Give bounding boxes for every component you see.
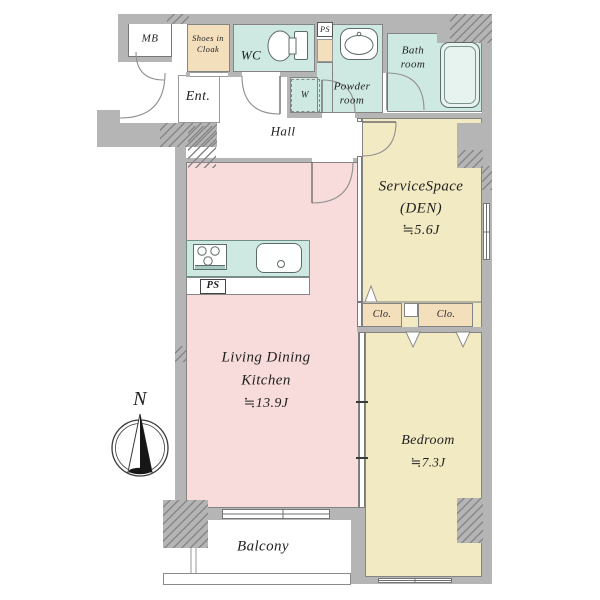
label-ldk-area: ≒13.9J <box>244 397 289 411</box>
door-gap-powder <box>322 113 355 118</box>
window-ldk-balcony <box>222 509 330 519</box>
hatch <box>188 126 216 168</box>
label-den-1: ServiceSpace <box>379 180 464 195</box>
wall-segment <box>118 14 128 62</box>
label-bedroom: Bedroom <box>401 434 455 448</box>
door-gap-shoes <box>190 72 228 77</box>
hatch <box>163 500 208 548</box>
wall-segment <box>175 147 186 508</box>
label-bedroom-area: ≒7.3J <box>411 456 446 469</box>
washbasin-icon <box>340 28 378 60</box>
door-arc-entrance <box>120 73 165 118</box>
wall-segment <box>287 77 290 118</box>
label-washer: W <box>301 91 309 100</box>
wall-segment <box>118 57 172 62</box>
toilet-tank <box>294 31 308 60</box>
label-shoes-2: Cloak <box>197 45 219 54</box>
label-wc: WC <box>241 49 261 62</box>
label-powder-2: room <box>340 96 364 107</box>
closet-small-box <box>404 303 418 317</box>
wall-segment <box>287 113 482 118</box>
label-ps-upper: PS <box>320 26 330 34</box>
window-den <box>483 203 490 260</box>
label-bath-2: room <box>401 60 425 71</box>
wall-partition <box>357 118 362 122</box>
window-bedroom <box>378 578 452 583</box>
hatch <box>167 14 189 24</box>
hatch <box>457 498 483 543</box>
label-closet-left: Clo. <box>373 310 392 320</box>
label-den-2: (DEN) <box>400 202 442 217</box>
hatch <box>482 166 492 190</box>
label-powder-1: Powder <box>334 82 371 93</box>
hatch <box>450 14 492 43</box>
label-ldk-2: Kitchen <box>241 374 290 389</box>
ps-upper-duct <box>317 39 333 62</box>
stove-icon <box>193 244 227 270</box>
door-gap-wc <box>242 72 280 77</box>
label-shoes-1: Shoes in <box>192 34 224 43</box>
door-arc-wc <box>242 76 280 114</box>
wall-segment <box>97 110 120 123</box>
label-den-area: ≒5.6J <box>402 224 439 238</box>
balcony-railing <box>163 573 351 585</box>
label-closet-right: Clo. <box>437 310 456 320</box>
wall-sliding-partition <box>359 332 365 508</box>
balcony-rail-lines <box>191 548 196 573</box>
label-bath-1: Bath <box>402 46 424 57</box>
label-compass-north: N <box>133 389 147 409</box>
label-ps-kitchen: PS <box>206 281 219 292</box>
kitchen-sink-icon <box>256 243 302 273</box>
label-entrance: Ent. <box>186 90 211 104</box>
wall-segment <box>351 508 365 584</box>
label-hall: Hall <box>271 125 296 138</box>
hatch <box>175 346 186 362</box>
room-ldk <box>186 162 359 508</box>
label-mb: MB <box>142 34 159 45</box>
hatch <box>458 150 483 168</box>
label-ldk-1: Living Dining <box>222 351 311 366</box>
wall-partition <box>357 156 362 302</box>
floor-plan: MB Shoes in Cloak WC PS Powder room W Ba… <box>0 0 600 600</box>
wall-segment <box>230 24 233 72</box>
wall-segment <box>387 24 437 33</box>
wall-segment <box>357 327 483 332</box>
wall-segment <box>482 40 492 584</box>
bathtub-icon <box>440 42 480 108</box>
compass-icon <box>112 414 168 476</box>
label-balcony: Balcony <box>237 540 289 555</box>
